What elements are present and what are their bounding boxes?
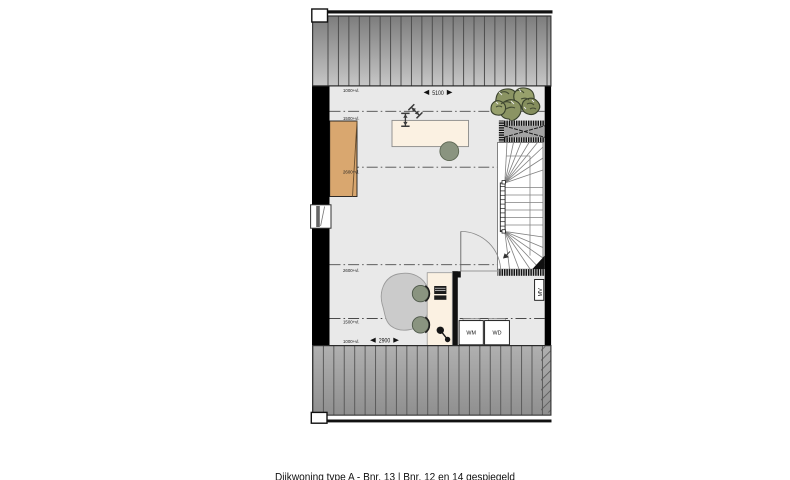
svg-text:2600+vl.: 2600+vl. <box>343 268 360 273</box>
svg-text:2900: 2900 <box>379 338 391 345</box>
svg-text:WM: WM <box>466 331 476 337</box>
svg-text:1000+vl.: 1000+vl. <box>343 339 360 344</box>
svg-text:1500+vl.: 1500+vl. <box>343 320 360 325</box>
svg-text:Dijkwoning type A - Bnr. 13 |: Dijkwoning type A - Bnr. 13 | Bnr. 12 en… <box>275 471 515 480</box>
svg-text:1500+vl.: 1500+vl. <box>343 116 360 121</box>
svg-text:MV: MV <box>538 288 544 297</box>
svg-text:WD: WD <box>493 331 502 337</box>
svg-text:1000+vl.: 1000+vl. <box>343 88 360 93</box>
svg-text:2600+vl.: 2600+vl. <box>343 169 360 174</box>
svg-text:5100: 5100 <box>432 90 444 97</box>
